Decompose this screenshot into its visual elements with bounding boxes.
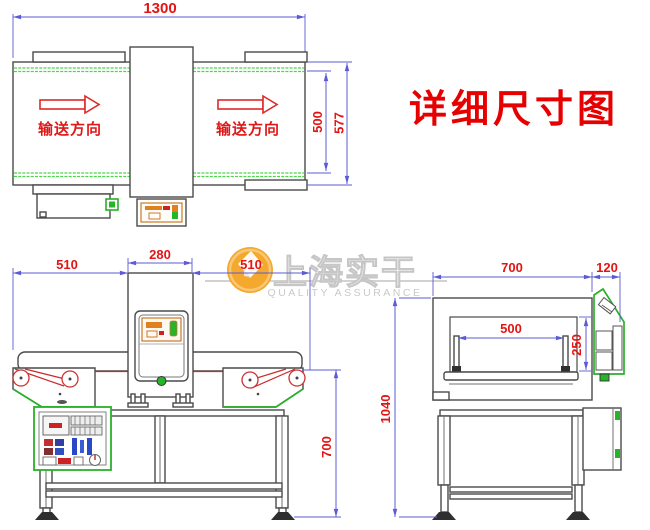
dim-700-height: 700	[294, 370, 341, 517]
svg-text:500: 500	[310, 111, 325, 133]
side-rail	[245, 180, 307, 190]
side-control-housing	[594, 289, 624, 381]
svg-text:280: 280	[149, 247, 171, 262]
side-rail	[245, 52, 307, 62]
dim-500-belt: 500	[307, 71, 331, 173]
dimension-drawing-page: 上海实干 QUALITY ASSURANCE 详细尺寸图 1300	[0, 0, 650, 530]
svg-text:510: 510	[240, 257, 262, 272]
svg-text:700: 700	[319, 436, 334, 458]
foot	[271, 512, 295, 520]
electrical-control-box	[34, 407, 111, 470]
svg-text:577: 577	[332, 112, 347, 134]
direction-label-right: 输送方向	[216, 120, 280, 138]
svg-text:1040: 1040	[378, 395, 393, 424]
control-display	[137, 199, 186, 226]
motor-box	[583, 408, 621, 470]
foot	[35, 512, 59, 520]
knob-icon	[157, 377, 166, 386]
svg-text:700: 700	[501, 260, 523, 275]
detector-display-panel	[142, 318, 181, 341]
svg-text:1300: 1300	[143, 0, 176, 17]
foot	[432, 512, 456, 520]
conveyor-end-right	[223, 368, 305, 407]
dim-1040-total: 1040	[378, 298, 437, 517]
knob-icon	[600, 374, 609, 381]
page-title: 详细尺寸图	[409, 89, 619, 131]
detector-head-top	[130, 47, 193, 197]
side-rail	[33, 52, 125, 62]
svg-text:120: 120	[596, 260, 618, 275]
svg-text:250: 250	[569, 334, 584, 356]
dim-510-left: 510	[13, 257, 128, 350]
svg-text:510: 510	[56, 257, 78, 272]
svg-text:500: 500	[500, 321, 522, 336]
under-box-flange	[33, 185, 113, 194]
dim-700-width: 700	[433, 260, 592, 296]
foot	[566, 512, 590, 520]
watermark-tagline: QUALITY ASSURANCE	[268, 287, 423, 299]
detector-head-front	[128, 273, 193, 407]
dim-280: 280	[128, 247, 192, 272]
belt-side	[444, 372, 578, 380]
conveyor-end-left	[13, 368, 95, 407]
frame-side	[432, 410, 590, 520]
side-view: 700 120 500 250 1040	[378, 260, 624, 520]
top-view: 1300	[13, 0, 352, 226]
direction-label-left: 输送方向	[38, 120, 102, 138]
drawing-svg: 上海实干 QUALITY ASSURANCE 详细尺寸图 1300	[0, 0, 650, 530]
pullout-box	[37, 194, 118, 218]
